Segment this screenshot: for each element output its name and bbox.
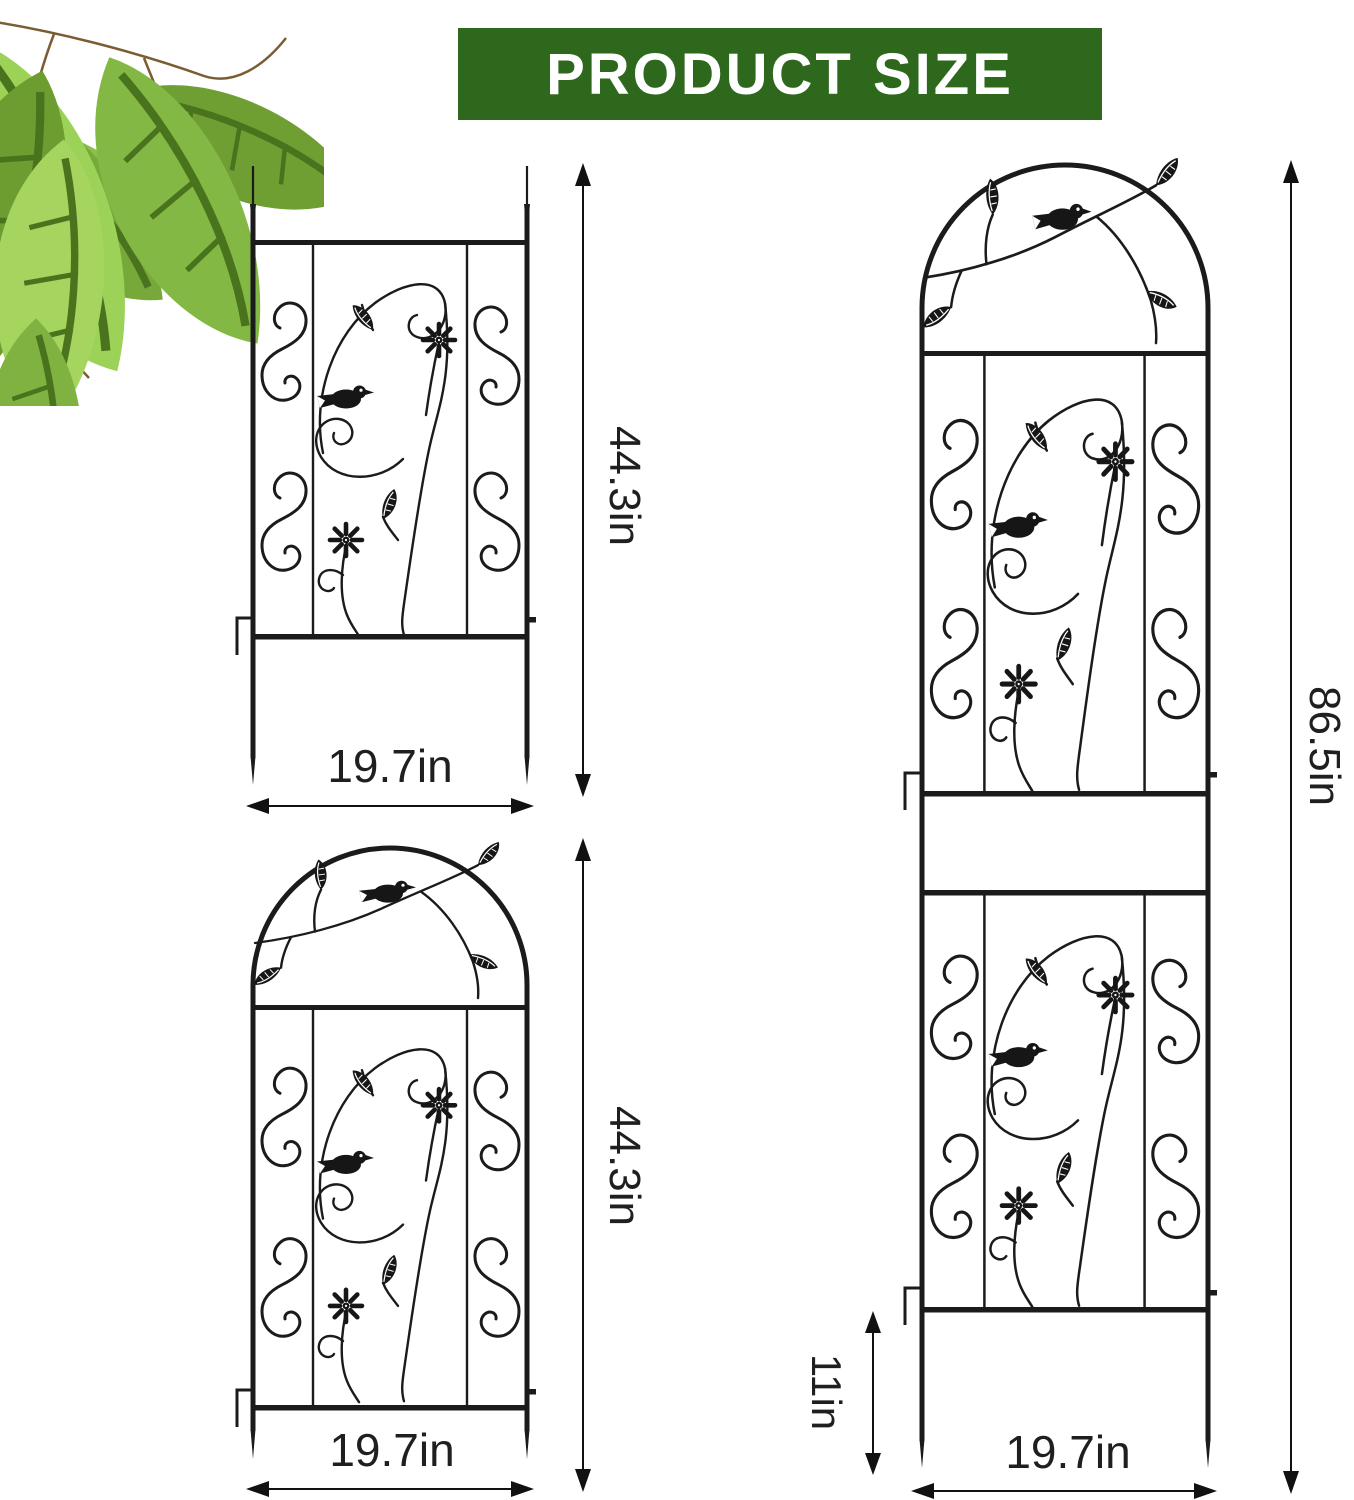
width-label-arched: 19.7in <box>329 1423 454 1477</box>
height-label-tall: 86.5in <box>1299 686 1349 806</box>
page-title: PRODUCT SIZE <box>546 41 1014 108</box>
product-size-infographic: PRODUCT SIZE <box>0 0 1354 1500</box>
height-dimension-arrow-flat <box>570 160 596 800</box>
stake-label-tall: 11in <box>802 1354 850 1430</box>
height-dimension-arrow-arched <box>570 835 596 1495</box>
trellis-tall-illustration <box>895 158 1235 1478</box>
width-dimension-arrow-tall <box>908 1478 1220 1500</box>
width-dimension-arrow-flat <box>243 793 537 819</box>
height-label-arched: 44.3in <box>599 1106 649 1226</box>
width-dimension-arrow-arched <box>243 1476 537 1500</box>
stake-dimension-arrow <box>860 1308 886 1478</box>
height-label-flat: 44.3in <box>599 426 649 546</box>
plant-hook <box>905 773 922 810</box>
plant-hook <box>905 1288 922 1325</box>
width-label-flat: 19.7in <box>327 739 452 793</box>
trellis-flat-illustration <box>225 158 545 803</box>
height-dimension-arrow-tall <box>1278 157 1304 1497</box>
title-banner: PRODUCT SIZE <box>458 28 1102 120</box>
width-label-tall: 19.7in <box>1005 1425 1130 1479</box>
trellis-arched-illustration <box>225 835 545 1475</box>
